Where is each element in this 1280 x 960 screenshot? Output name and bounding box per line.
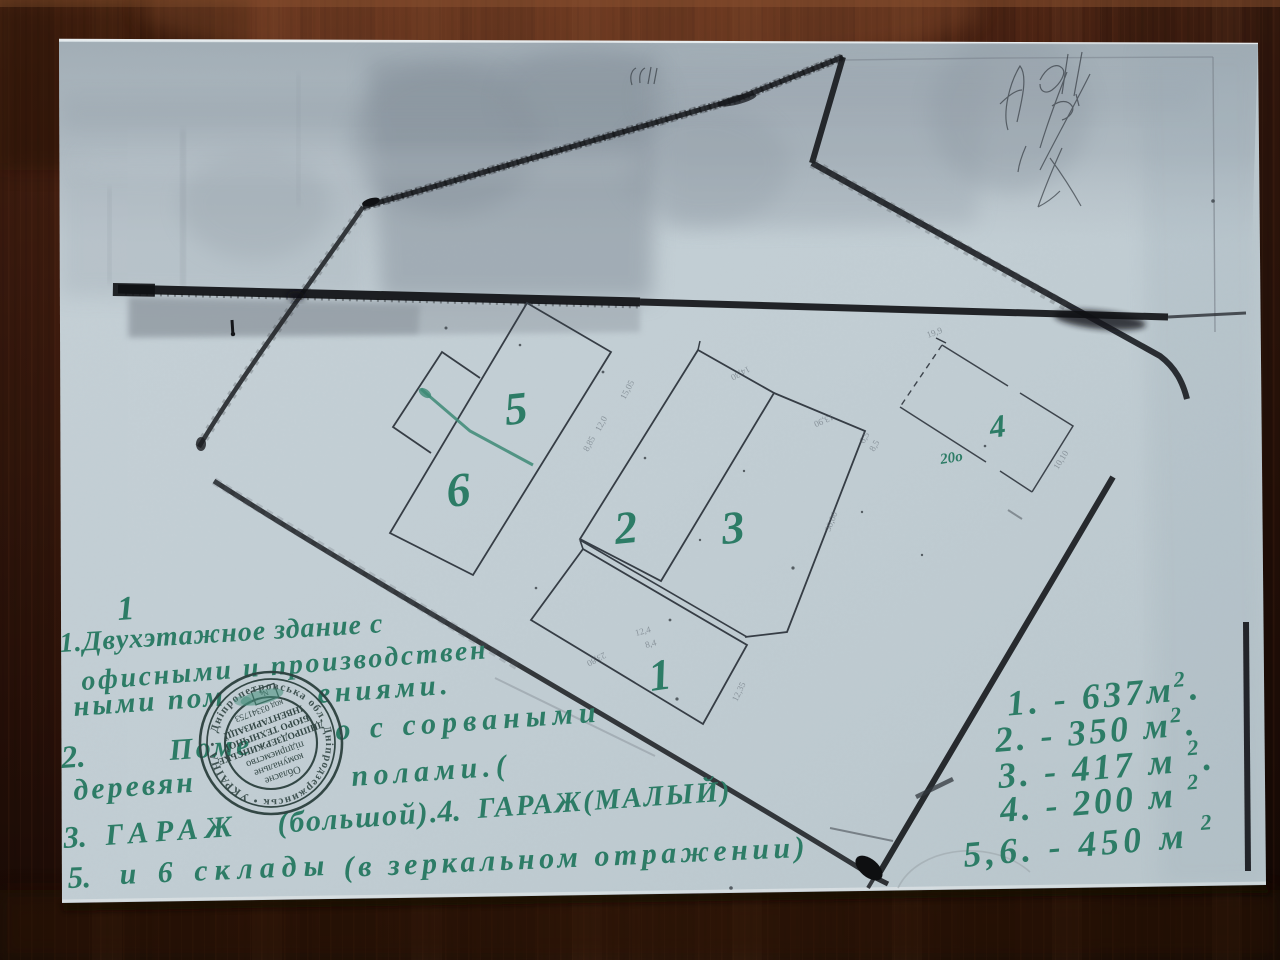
svg-text:1: 1 [116,590,136,628]
svg-text:4.: 4. [435,792,462,829]
svg-text:2.: 2. [59,737,86,775]
svg-text:5.: 5. [67,859,92,895]
svg-text:3.: 3. [61,818,88,855]
